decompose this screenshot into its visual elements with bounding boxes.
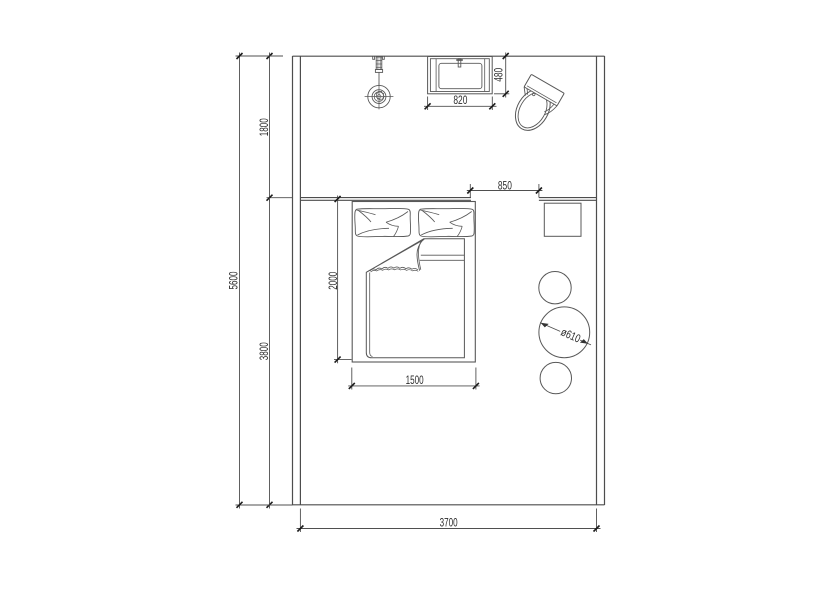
svg-text:480: 480 xyxy=(494,68,506,82)
svg-text:3700: 3700 xyxy=(440,517,458,529)
svg-text:5600: 5600 xyxy=(228,272,240,290)
svg-text:1500: 1500 xyxy=(406,375,424,387)
svg-text:1800: 1800 xyxy=(259,118,271,136)
svg-text:ø610: ø610 xyxy=(559,327,582,346)
svg-text:2000: 2000 xyxy=(328,272,340,290)
svg-text:820: 820 xyxy=(453,95,467,107)
svg-text:3800: 3800 xyxy=(259,342,271,360)
svg-text:850: 850 xyxy=(498,180,512,192)
